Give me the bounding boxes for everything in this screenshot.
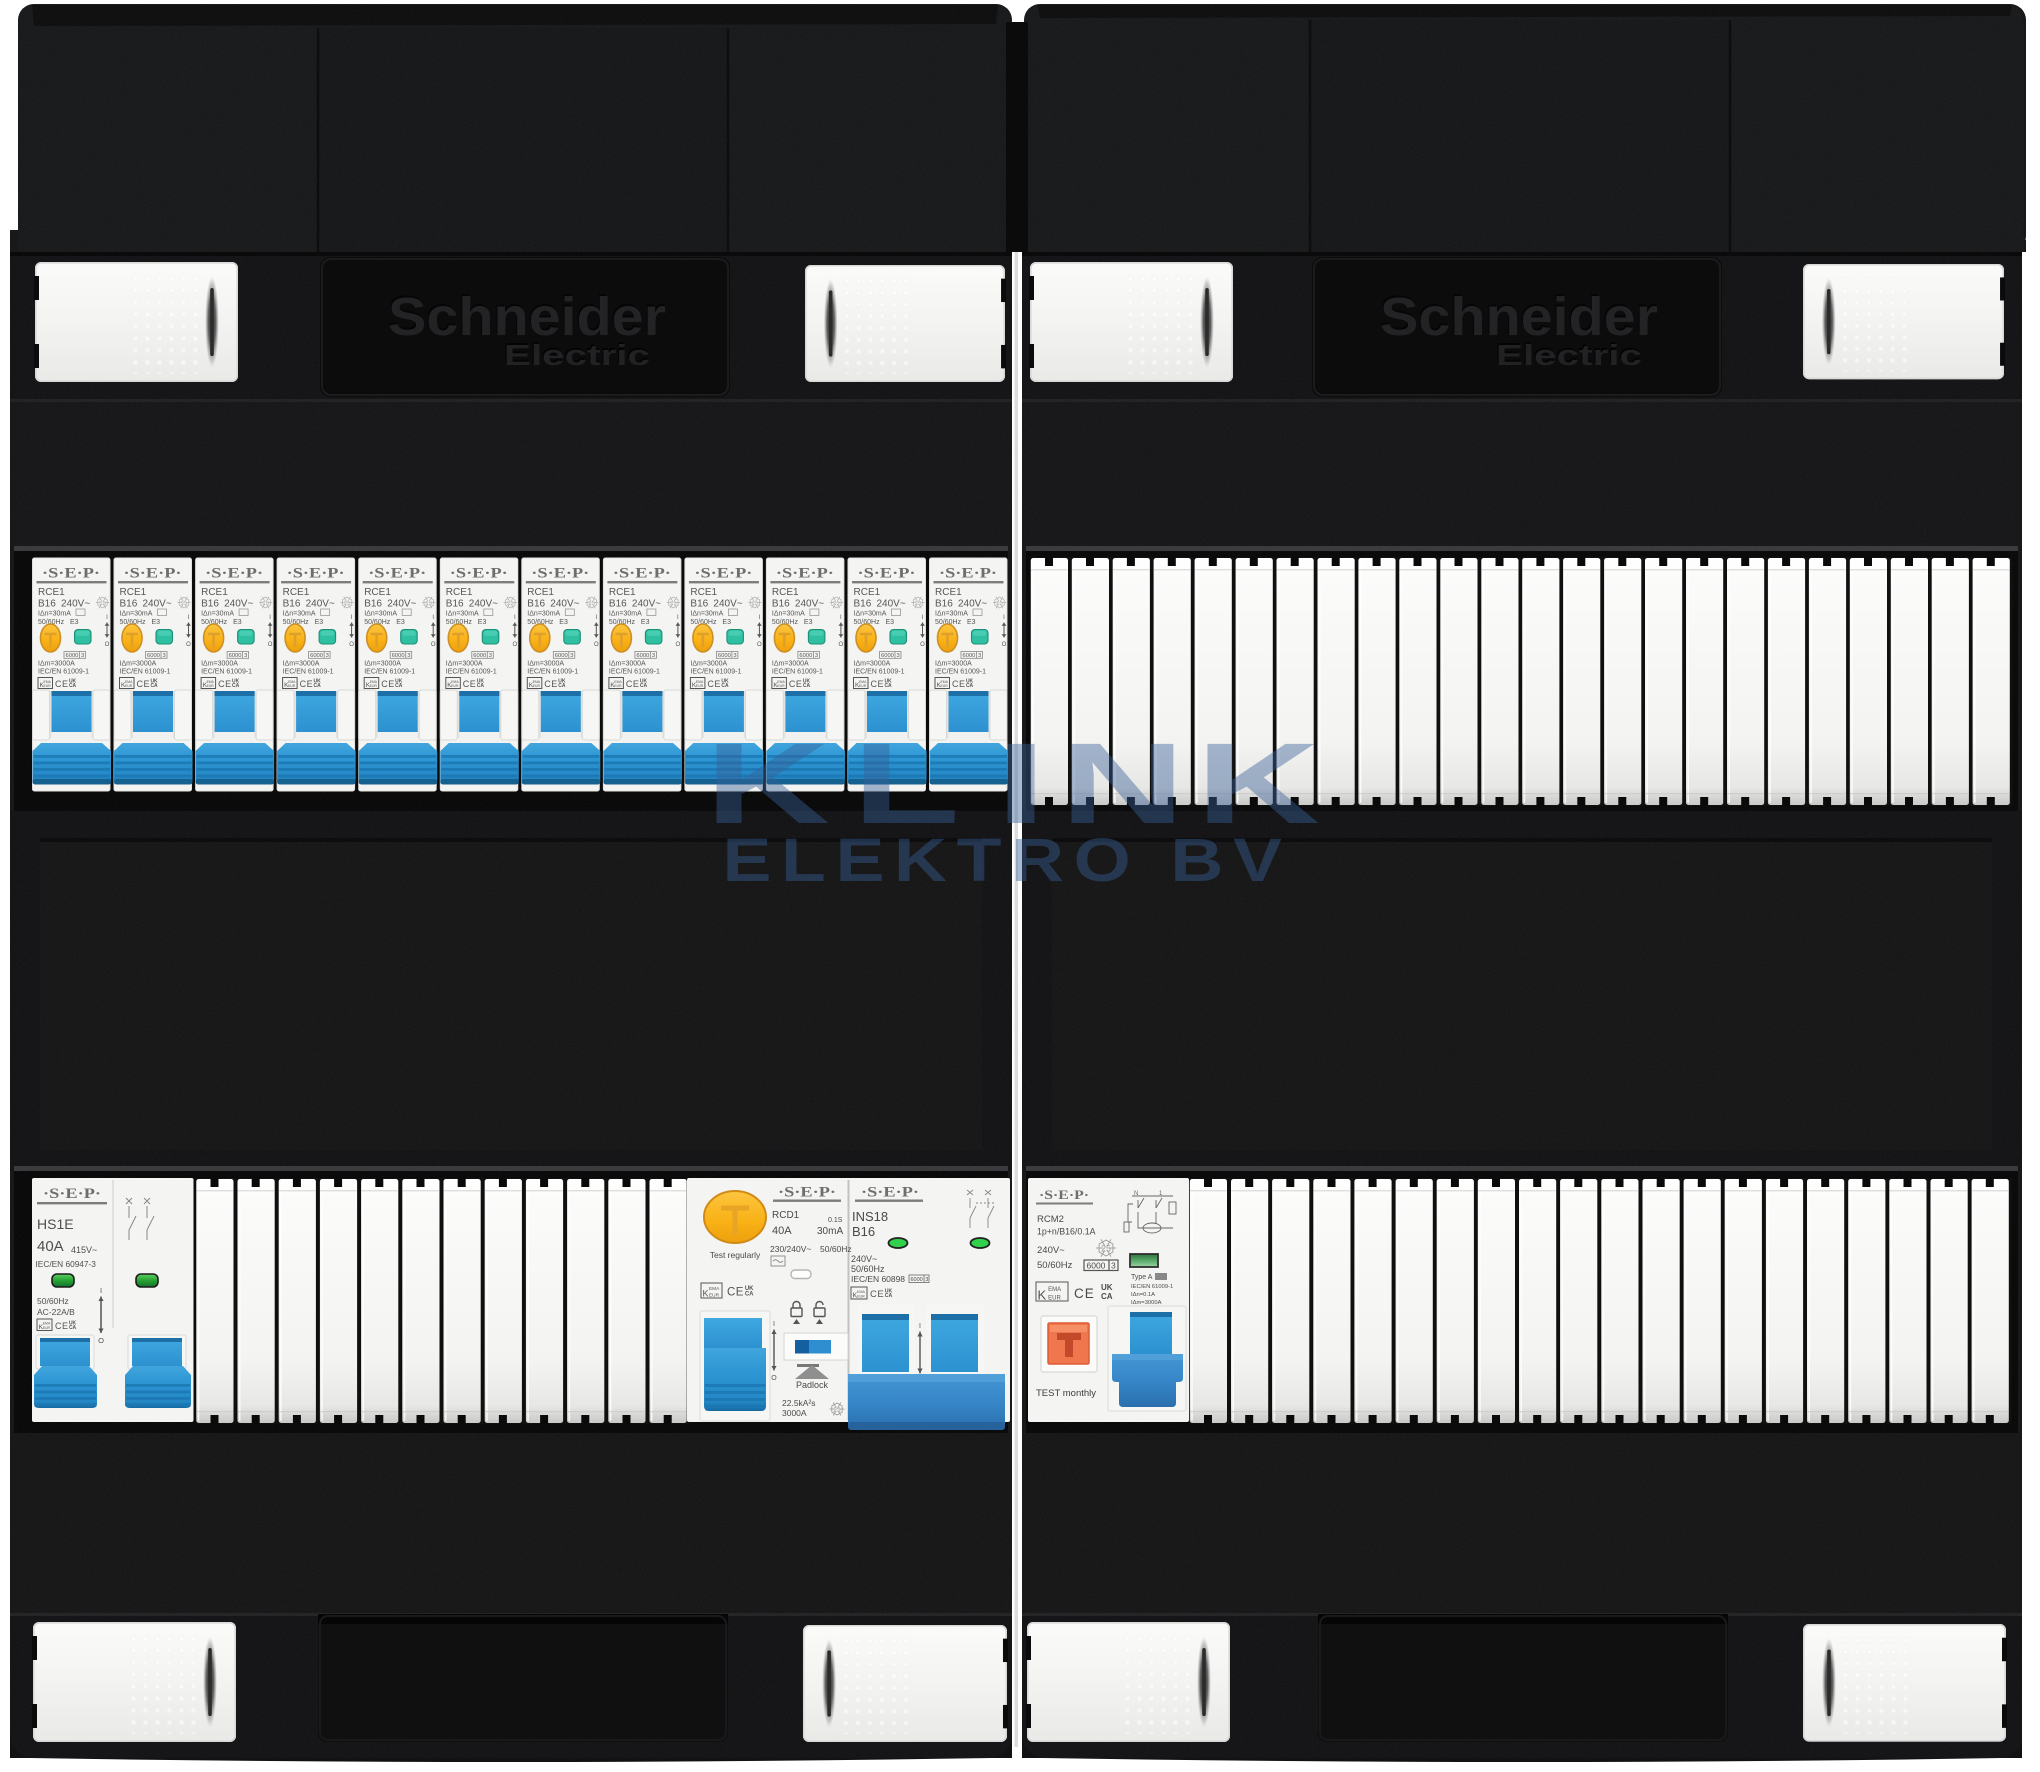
svg-text:ELEKTRO BV: ELEKTRO BV xyxy=(723,826,1292,894)
